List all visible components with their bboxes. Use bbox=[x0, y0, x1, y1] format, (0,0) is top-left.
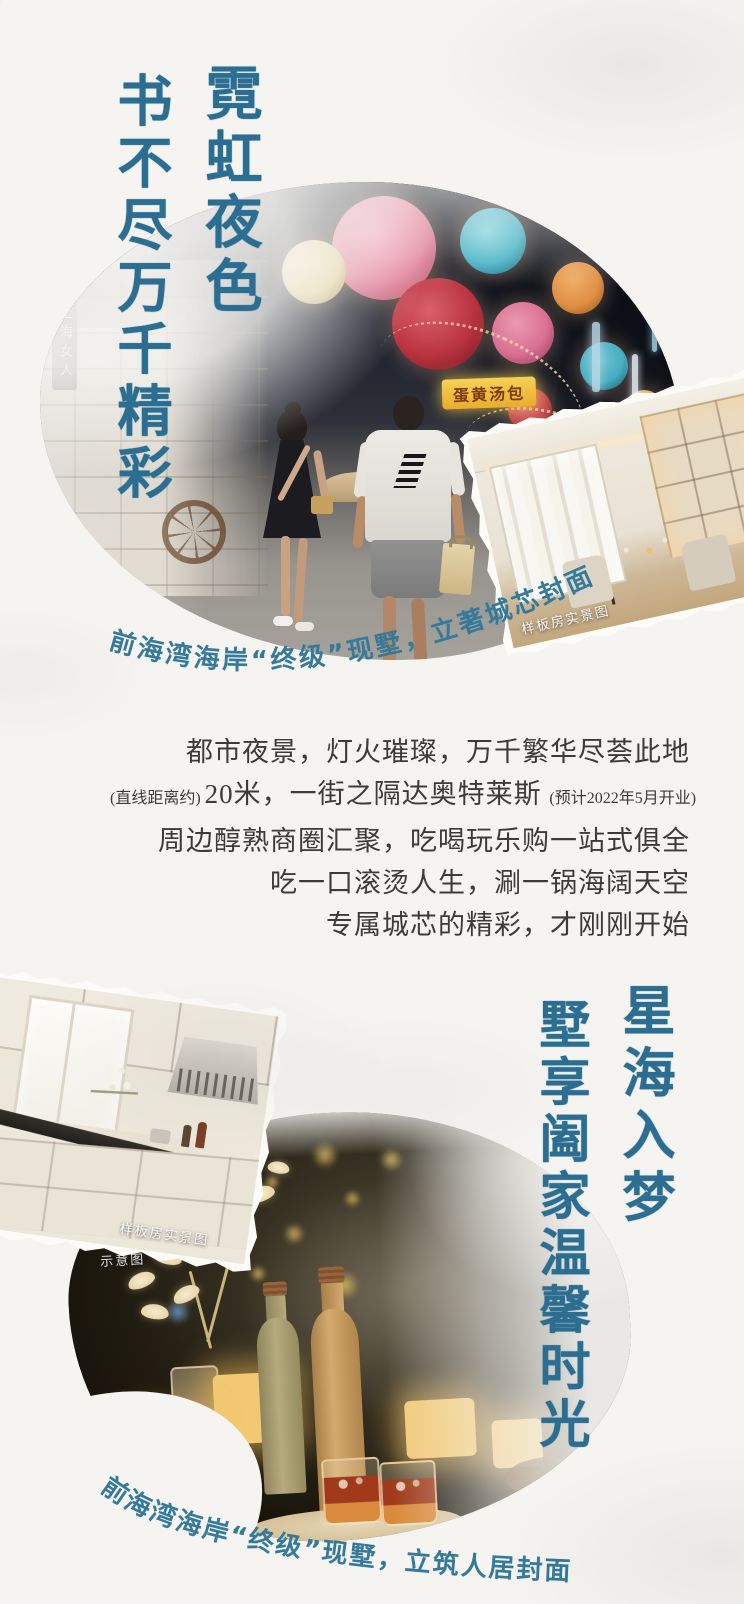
hero-title-sub: 书不尽万千精彩 bbox=[112, 72, 167, 506]
kitchen-photo: 样板房实景图 bbox=[0, 966, 289, 1275]
dream-arc-textpath: 前海湾海岸“终级”现墅，立筑人居封面 bbox=[96, 1471, 573, 1587]
hero-arc-caption: 前海湾海岸“终级”现墅，立著城芯封面 bbox=[82, 560, 682, 720]
dream-title-main: 星海入梦 bbox=[618, 983, 671, 1231]
dream-arc-caption: 前海湾海岸“终级”现墅，立筑人居封面 bbox=[80, 1464, 640, 1604]
hero-title-main: 霓虹夜色 bbox=[200, 64, 257, 320]
distance-note: (直线距离约) bbox=[110, 790, 205, 807]
distance-text: 20米，一街之隔达奥特莱斯 bbox=[205, 779, 550, 809]
body-line-2: (直线距离约) 20米，一街之隔达奥特莱斯 (预计2022年5月开业) bbox=[110, 773, 690, 820]
hero-arc-text: 前海湾海岸“终级”现墅，立著城芯封面 bbox=[106, 561, 600, 676]
body-line-5: 专属城芯的精彩，才刚刚开始 bbox=[110, 904, 690, 946]
body-line-1: 都市夜景，灯火璀璨，万千繁华尽荟此地 bbox=[110, 731, 690, 773]
hero-arc-textpath: 前海湾海岸“终级”现墅，立著城芯封面 bbox=[106, 561, 600, 676]
real-estate-poster: 蛋黄汤包 上海女人 bbox=[0, 0, 744, 1604]
dream-title-sub: 墅享阖家温馨时光 bbox=[534, 998, 585, 1454]
kitchen-photo-image: 样板房实景图 bbox=[0, 976, 279, 1264]
dream-arc-text: 前海湾海岸“终级”现墅，立筑人居封面 bbox=[96, 1471, 573, 1587]
body-line-4: 吃一口滚烫人生，涮一锅海阔天空 bbox=[110, 862, 690, 904]
opening-note: (预计2022年5月开业) bbox=[549, 790, 696, 807]
counter-flowers bbox=[87, 1061, 141, 1122]
body-line-3: 周边醇熟商圈汇聚，吃喝玩乐购一站式俱全 bbox=[110, 820, 690, 862]
body-copy: 都市夜景，灯火璀璨，万千繁华尽荟此地 (直线距离约) 20米，一街之隔达奥特莱斯… bbox=[110, 731, 690, 946]
cooking-pot bbox=[149, 1127, 171, 1144]
